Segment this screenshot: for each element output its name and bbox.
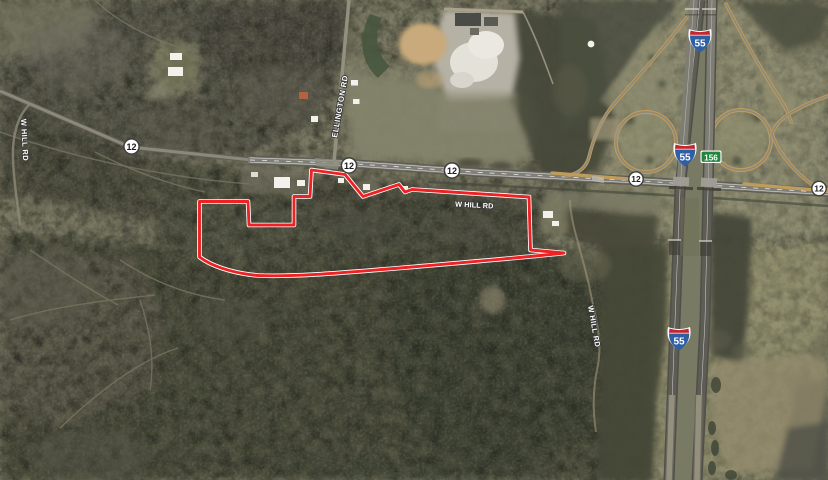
svg-text:12: 12	[344, 161, 354, 171]
svg-text:12: 12	[447, 166, 457, 176]
svg-text:55: 55	[673, 337, 685, 348]
svg-text:156: 156	[704, 153, 718, 162]
svg-text:12: 12	[814, 184, 824, 194]
svg-text:55: 55	[694, 39, 706, 50]
svg-text:12: 12	[126, 142, 136, 152]
svg-text:12: 12	[631, 174, 641, 184]
svg-text:55: 55	[679, 153, 691, 164]
